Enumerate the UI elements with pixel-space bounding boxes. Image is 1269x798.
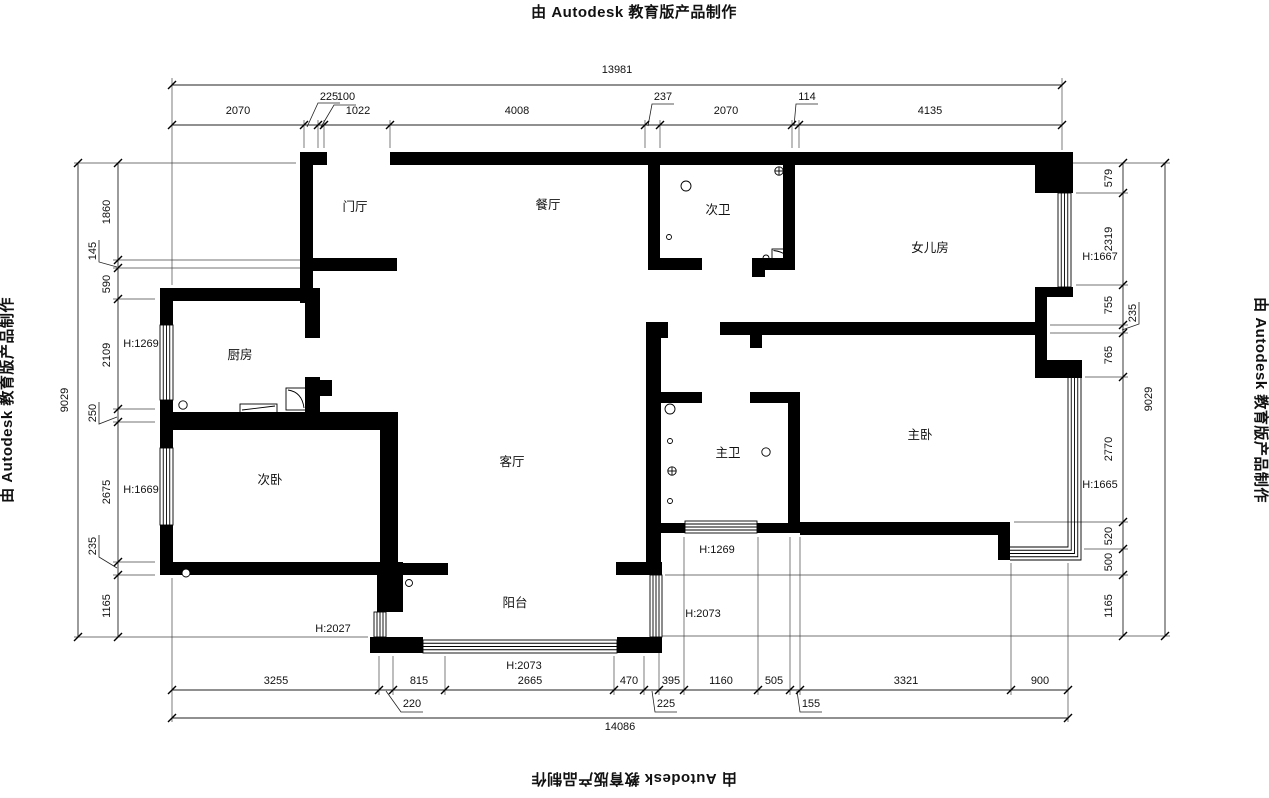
dimension-lines [78,85,1165,718]
room-label: 主卧 [907,428,932,442]
wall-segment [160,288,173,325]
watermark-right: 由 Autodesk 教育版产品制作 [1252,297,1269,503]
dim-label-right: 520 [1103,527,1115,545]
dim-label-top: 1022 [346,105,370,117]
bay-window [1010,378,1081,560]
wall-segment [312,258,397,271]
lamp-symbol [681,181,691,191]
wall-segment [617,637,662,653]
extension-lines [74,78,1170,722]
dim-label-right: 2319 [1103,227,1115,251]
room-label: 门厅 [342,199,367,214]
dim-total-top: 13981 [602,64,633,76]
wall-segment [648,258,702,270]
bay-window-line [1010,378,1075,554]
dim-label-top: 237 [654,91,672,103]
bay-window-line [1010,378,1071,550]
leader-lines [99,103,1139,712]
dim-label-top: 4135 [918,105,942,117]
dim-label-right: 1165 [1103,594,1115,618]
dim-label-bottom: 155 [802,698,820,710]
dim-label-right: 2770 [1103,437,1115,461]
wall-segment [750,335,762,348]
dim-label-left: 250 [87,404,99,422]
small-outlet-symbol [668,499,673,504]
dim-label-top: 2070 [714,105,738,117]
wall-segment [160,562,403,575]
watermark-bottom: 由 Autodesk 教育版产品制作 [531,770,737,788]
room-label: 餐厅 [535,197,560,212]
wall-segment [648,160,660,270]
dim-label-bottom: 1160 [709,675,733,687]
room-label: 阳台 [502,595,527,610]
dim-label-right: 235 [1127,304,1139,322]
height-label: H:1665 [1082,479,1117,491]
wall-segment [300,152,313,303]
wall-segment [657,523,685,533]
watermark-left: 由 Autodesk 教育版产品制作 [0,297,16,503]
height-label: H:2073 [506,660,541,672]
wall-segment [783,152,795,270]
floor-plan-canvas: 1398120702251001022400823720701144135140… [0,0,1269,798]
dim-label-left: 2109 [101,343,113,367]
wall-segment [800,522,1010,535]
window-height-labels: H:1269H:1669H:1667H:1665H:1269H:2073H:20… [123,251,1117,672]
floor-drain-icon [775,167,783,175]
small-outlet-symbol [668,439,673,444]
wall-segment [320,380,332,396]
wall-segment [1035,360,1082,378]
dim-label-bottom: 3255 [264,675,288,687]
floor-plan-page: 1398120702251001022400823720701144135140… [0,0,1269,798]
dim-label-top: 2070 [226,105,250,117]
wall-segment [160,288,317,301]
room-label: 女儿房 [911,240,949,255]
wall-segment [616,562,662,575]
water-heater [286,388,306,410]
dimension-ticks [74,81,1169,722]
wall-segment [757,523,800,533]
dim-label-top: 100 [337,91,355,103]
watermark-top: 由 Autodesk 教育版产品制作 [531,3,737,21]
dim-label-left: 1165 [101,594,113,618]
wall-segment [160,412,398,430]
height-label: H:1667 [1082,251,1117,263]
dim-label-left: 1860 [101,200,113,224]
wall-segment [998,522,1010,560]
dim-label-right: 500 [1103,553,1115,571]
dim-total-right: 9029 [1143,387,1155,411]
heater-arc [288,390,304,408]
room-label: 次卧 [257,473,282,487]
dim-label-bottom: 225 [657,698,675,710]
wall-segment [646,322,668,338]
wall-segment [377,563,403,612]
wall-segment [720,322,1047,335]
dim-label-left: 590 [101,275,113,293]
height-label: H:2073 [685,608,720,620]
kitchen-counter [240,404,277,413]
dim-label-bottom: 470 [620,675,638,687]
height-label: H:1669 [123,484,158,496]
dim-label-bottom: 3321 [894,675,918,687]
wall-segment [160,400,173,448]
dim-label-right: 755 [1103,296,1115,314]
room-label: 主卫 [715,446,740,460]
bay-window-line [1010,378,1081,560]
counter-line [242,406,275,410]
height-label: H:1269 [123,338,158,350]
wall-segment [390,152,1047,165]
dim-label-right: 579 [1103,169,1115,187]
dim-label-left: 145 [87,242,99,260]
wall-segment [788,392,800,533]
wall-segment [370,637,423,653]
dim-total-bottom: 14086 [605,721,636,733]
dim-label-right: 765 [1103,346,1115,364]
wall-segment [752,262,765,277]
room-label: 厨房 [227,347,252,362]
dim-label-left: 2675 [101,480,113,504]
dim-label-top: 4008 [505,105,529,117]
toilet-symbol [762,448,770,456]
wall-segment [658,392,702,403]
dim-label-bottom: 2665 [518,675,542,687]
small-outlet-symbol [667,235,672,240]
height-label: H:1269 [699,544,734,556]
walls [160,152,1082,653]
height-label: H:2027 [315,623,350,635]
pipe-symbol [182,569,190,577]
dim-label-top: 225 [320,91,338,103]
basin-symbol [665,404,675,414]
wall-segment [305,288,320,338]
dim-label-top: 114 [798,91,816,103]
pipe-symbol [406,580,413,587]
dim-total-left: 9029 [59,388,71,412]
dim-label-left: 235 [87,537,99,555]
dim-label-bottom: 815 [410,675,428,687]
wall-segment [1035,152,1073,193]
room-label: 次卫 [705,203,730,217]
wall-segment [380,415,398,563]
dim-label-bottom: 900 [1031,675,1049,687]
floor-drain-icon [668,467,676,475]
room-label: 客厅 [499,454,524,469]
sink-symbol [179,401,187,409]
dim-label-bottom: 395 [662,675,680,687]
dim-label-bottom: 505 [765,675,783,687]
dim-label-bottom: 220 [403,698,421,710]
